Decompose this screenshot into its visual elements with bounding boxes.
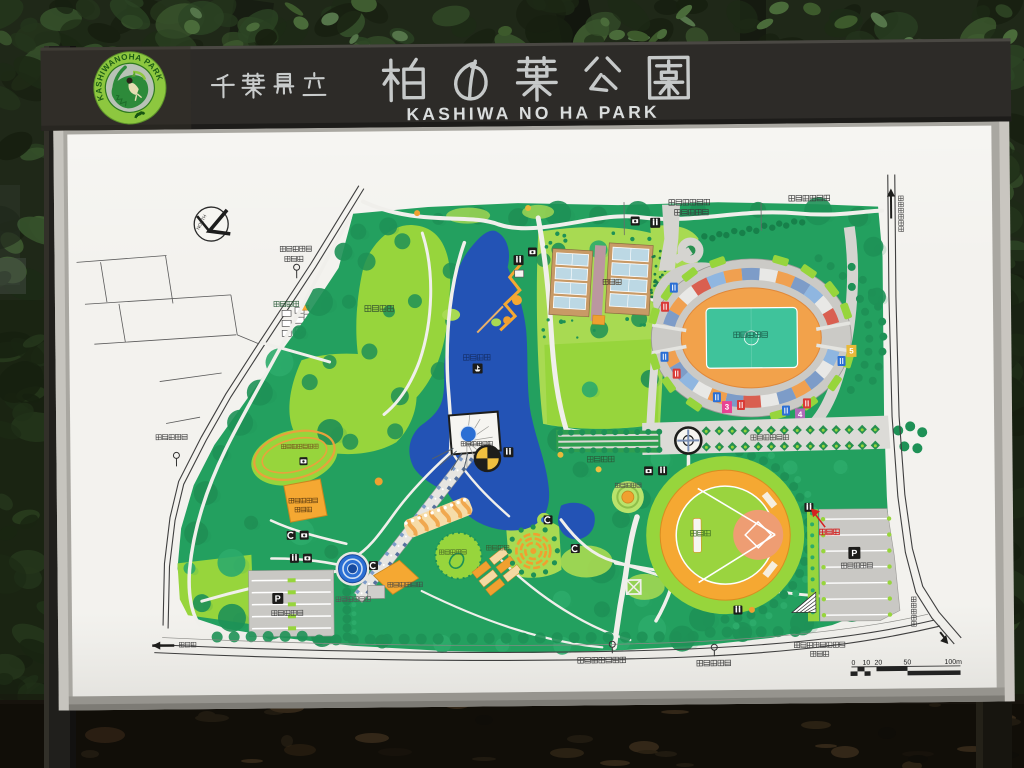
svg-text:10: 10 [862, 660, 870, 667]
svg-text:100m: 100m [944, 659, 962, 666]
svg-text:0: 0 [851, 660, 855, 667]
svg-text:P: P [851, 548, 857, 558]
svg-text:KASHIWA NO HA PARK: KASHIWA NO HA PARK [406, 102, 660, 124]
svg-text:20: 20 [874, 660, 882, 667]
svg-text:3: 3 [725, 403, 730, 412]
svg-text:P: P [275, 594, 281, 604]
svg-text:4: 4 [798, 410, 803, 419]
svg-text:5: 5 [849, 346, 854, 355]
svg-text:50: 50 [903, 659, 911, 666]
